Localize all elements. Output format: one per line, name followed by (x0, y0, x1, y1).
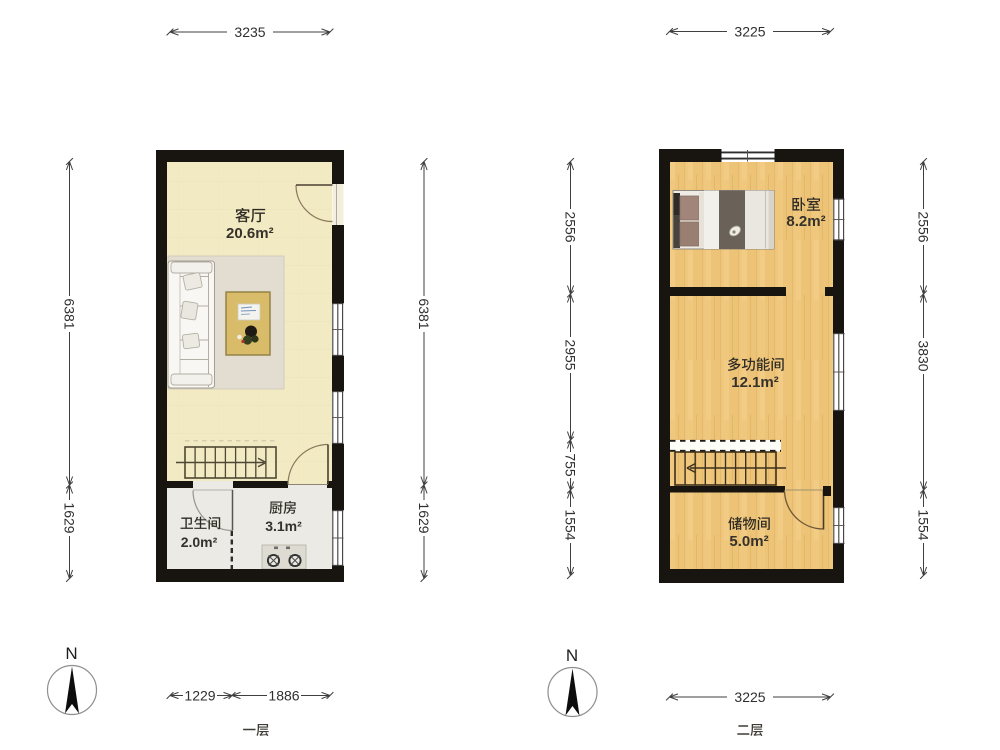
svg-text:12.1m²: 12.1m² (731, 374, 779, 391)
svg-text:6381: 6381 (416, 298, 432, 329)
svg-text:1629: 1629 (416, 502, 432, 533)
svg-text:2.0m²: 2.0m² (181, 534, 218, 550)
svg-text:20.6m²: 20.6m² (226, 225, 274, 242)
svg-text:2556: 2556 (916, 211, 932, 242)
svg-text:1629: 1629 (62, 502, 78, 533)
svg-text:1554: 1554 (563, 509, 579, 540)
svg-text:3.1m²: 3.1m² (265, 518, 302, 534)
svg-text:6381: 6381 (62, 298, 78, 329)
svg-text:3830: 3830 (916, 340, 932, 371)
svg-text:N: N (65, 644, 77, 663)
svg-text:1886: 1886 (268, 687, 299, 703)
svg-text:N: N (566, 646, 578, 665)
svg-text:3235: 3235 (234, 24, 265, 40)
svg-text:5.0m²: 5.0m² (729, 533, 768, 550)
svg-text:3225: 3225 (734, 689, 765, 705)
svg-text:1554: 1554 (916, 509, 932, 540)
svg-text:1229: 1229 (184, 687, 215, 703)
svg-text:3225: 3225 (734, 23, 765, 39)
svg-text:8.2m²: 8.2m² (786, 213, 825, 230)
svg-text:2556: 2556 (563, 211, 579, 242)
svg-text:755: 755 (563, 453, 579, 477)
svg-text:2955: 2955 (563, 339, 579, 370)
